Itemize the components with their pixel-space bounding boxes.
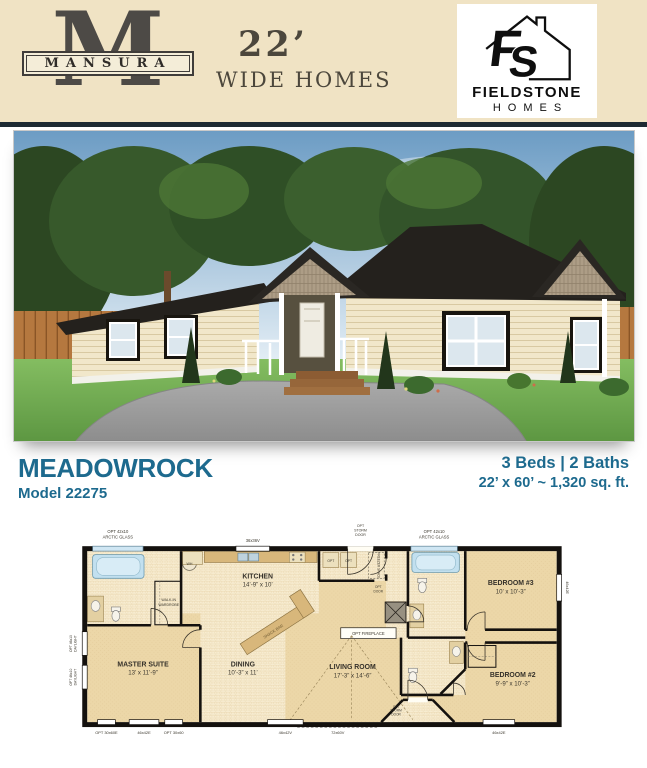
right-porch-post xyxy=(602,299,607,377)
storm-top-label-1: OPT xyxy=(357,524,365,528)
window-46x42v xyxy=(268,720,304,725)
fireplace-label: OPT FIREPLACE xyxy=(352,631,385,636)
arctic-right-label-2: ARCTIC GLASS xyxy=(419,534,450,539)
fs-letter-s: S xyxy=(506,38,541,83)
specs-block: 3 Beds | 2 Baths 22’ x 60’ ~ 1,320 sq. f… xyxy=(479,455,629,491)
range xyxy=(289,552,305,562)
model-number: Model 22275 xyxy=(18,485,213,502)
daylight-label-2a: OPT 46x10 xyxy=(69,669,73,686)
storm-top-label-3: DOOR xyxy=(355,533,366,537)
model-block: MEADOWROCK Model 22275 xyxy=(18,455,213,502)
room-bedroom2: BEDROOM #2 xyxy=(490,672,536,679)
kitchen-sink xyxy=(238,553,248,561)
room-master-suite-size: 13’ x 11’-9” xyxy=(128,670,158,677)
width-feet-text: 22’ xyxy=(216,24,391,65)
arctic-left-label-1: OPT 42x10 xyxy=(107,529,129,534)
washer-label: OPT xyxy=(327,559,334,563)
fieldstone-name: FIELDSTONE xyxy=(472,84,582,101)
refrigerator xyxy=(183,552,203,565)
title-row: MEADOWROCK Model 22275 3 Beds | 2 Baths … xyxy=(18,455,629,502)
house-rendering-frame xyxy=(13,130,635,442)
window-label-46x42e-1: 46x42E xyxy=(137,730,151,735)
window-main-double xyxy=(442,311,510,371)
dryer-label: OPT xyxy=(345,559,352,563)
entry-door xyxy=(300,303,324,357)
bedroom3-window-label: 46x42E xyxy=(565,581,569,594)
header: M MANSURA 22’ WIDE HOMES F S FIELDSTONE … xyxy=(0,0,647,122)
arctic-glass-right-window xyxy=(411,546,457,551)
window-46x42e-master xyxy=(129,720,159,725)
fieldstone-logo: F S FIELDSTONE HOMES xyxy=(457,4,597,118)
arctic-right-label-1: OPT 42x10 xyxy=(424,529,446,534)
mansura-logo: M MANSURA xyxy=(22,4,194,118)
specs-dimensions: 22’ x 60’ ~ 1,320 sq. ft. xyxy=(479,475,629,491)
daylight-label-1a: OPT 46x10 xyxy=(69,635,73,652)
porch-post-left xyxy=(279,293,284,375)
daylight-label-1b: DAYLIGHT xyxy=(73,635,77,652)
room-living-size: 17’-3” x 14’-6” xyxy=(334,673,372,680)
header-divider xyxy=(0,122,647,127)
room-dining-size: 10’-3” x 11’ xyxy=(228,670,258,677)
rear-door-opening xyxy=(348,546,374,551)
daylight-label-2b: DAYLIGHT xyxy=(73,669,77,686)
fieldstone-homes: HOMES xyxy=(486,102,568,114)
porch-steps xyxy=(284,371,370,395)
room-bedroom2-size: 9’-9” x 10’-3” xyxy=(496,681,530,688)
storm-entry-label-3: DOOR xyxy=(391,713,401,717)
model-name: MEADOWROCK xyxy=(18,455,213,482)
house-rendering xyxy=(14,131,634,441)
room-kitchen: KITCHEN xyxy=(242,573,273,580)
window-label-46x42e-2: 46x42E xyxy=(492,730,506,735)
width-homes-block: 22’ WIDE HOMES xyxy=(216,24,391,92)
daylight-window-1 xyxy=(82,632,87,656)
room-kitchen-size: 14’-9” x 10’ xyxy=(243,582,273,589)
fieldstone-house-glyph: F S xyxy=(479,9,575,83)
specs-beds-baths: 3 Beds | 2 Baths xyxy=(479,455,629,472)
room-master-suite: MASTER SUITE xyxy=(117,661,169,668)
arctic-left-label-2: ARCTIC GLASS xyxy=(103,534,134,539)
window-left-1 xyxy=(106,319,140,361)
room-bedroom3: BEDROOM #3 xyxy=(488,580,534,587)
floors xyxy=(87,551,557,722)
walkin-label-1: WALK-IN xyxy=(161,598,176,602)
window-30x60e xyxy=(98,720,116,725)
porch-post-right xyxy=(335,293,340,375)
floorplan: OPT 42x10 ARCTIC GLASS 36x36V OPT STORM … xyxy=(60,519,574,766)
bedroom3-window xyxy=(557,574,562,601)
width-homes-text: WIDE HOMES xyxy=(216,68,391,92)
window-label-30x60: OPT 30x60 xyxy=(164,730,185,735)
window-46x42e-bed2 xyxy=(483,720,515,725)
window-label-30x60e: OPT 30x60E xyxy=(95,730,118,735)
arctic-glass-left-window xyxy=(93,546,143,551)
flyer-page: M MANSURA 22’ WIDE HOMES F S FIELDSTONE … xyxy=(0,0,647,768)
fs-monogram: F S xyxy=(485,19,543,83)
opt-door-label-2: DOOR xyxy=(374,590,384,594)
kitchen-window xyxy=(236,546,270,551)
window-label-46x42v: 46x42V xyxy=(279,730,293,735)
freezer-label: FREEZER SPACE xyxy=(376,552,380,578)
window-label-72x60v: 72x60V xyxy=(331,730,345,735)
mansura-banner: MANSURA xyxy=(22,51,194,76)
room-bedroom3-size: 10’ x 10’-3” xyxy=(496,589,526,596)
room-dining: DINING xyxy=(231,661,255,668)
kitchen-window-label: 36x36V xyxy=(246,538,260,543)
water-heater-label: WH xyxy=(187,562,193,566)
front-door-opening xyxy=(408,697,428,702)
walkin-label-2: WARDROBE xyxy=(158,603,179,607)
opt-door-label-1: OPT xyxy=(375,585,382,589)
storm-top-label-2: STORM xyxy=(354,528,367,532)
window-right xyxy=(570,317,602,373)
daylight-window-2 xyxy=(82,665,87,689)
floorplan-container: OPT 42x10 ARCTIC GLASS 36x36V OPT STORM … xyxy=(60,519,574,766)
room-living: LIVING ROOM xyxy=(329,664,376,671)
window-30x60 xyxy=(165,720,183,725)
